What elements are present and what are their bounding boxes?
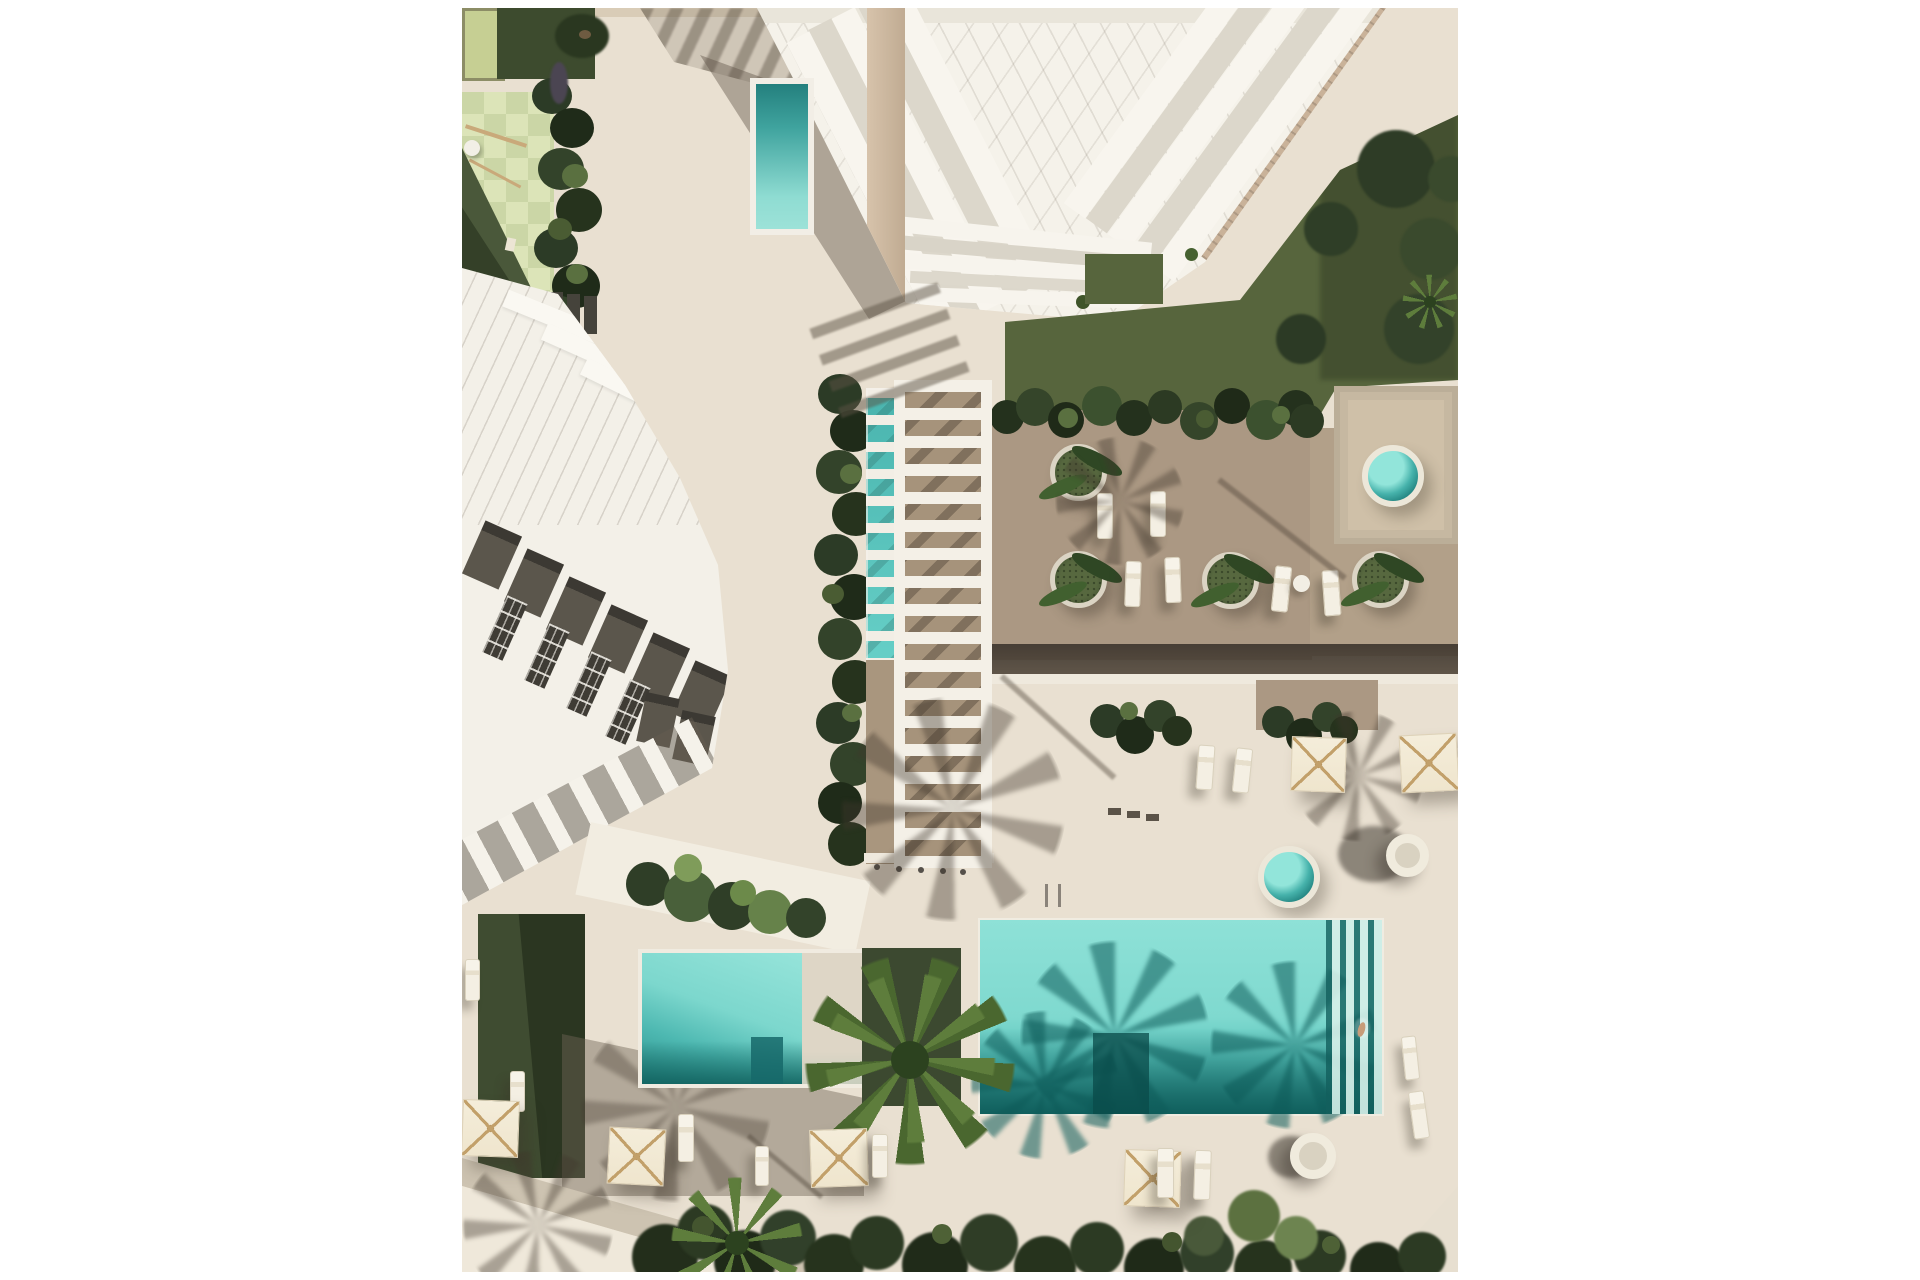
lawn-strip <box>1085 254 1163 304</box>
spa-pool <box>1258 846 1320 908</box>
sun-lounger <box>678 1114 694 1162</box>
step-marker <box>1127 811 1140 818</box>
shape <box>1045 884 1048 907</box>
hedge-south <box>1090 694 1188 760</box>
pool-steps-lines <box>1326 920 1382 1114</box>
shape <box>1120 702 1138 720</box>
shrub-accent <box>932 1224 952 1244</box>
round-planter <box>1352 551 1409 608</box>
tropical-plant <box>1274 1216 1318 1260</box>
parasol <box>1290 736 1347 793</box>
shrub <box>850 1216 904 1270</box>
sun-lounger <box>1157 1148 1174 1198</box>
parasol <box>809 1128 869 1188</box>
shape <box>1116 400 1152 436</box>
round-planter <box>1202 552 1259 609</box>
shape <box>548 218 572 240</box>
shape <box>822 584 844 604</box>
fan-palm <box>1402 274 1458 330</box>
bench <box>584 296 597 334</box>
pool-step <box>751 1037 783 1084</box>
pool-coping <box>750 78 814 235</box>
shape <box>1272 406 1290 424</box>
tree-canopy <box>1304 202 1358 256</box>
deck-edge-shadow <box>990 644 1458 678</box>
parasol <box>607 1127 667 1187</box>
tropical-plant <box>1184 1216 1224 1256</box>
shrub-accent <box>1162 1232 1182 1252</box>
shape <box>1058 408 1078 428</box>
plume-plant <box>550 62 568 104</box>
rooftop-lap-pool <box>756 84 808 229</box>
sun-lounger <box>1124 561 1142 608</box>
shape <box>1214 388 1250 424</box>
pool-step <box>1093 1033 1149 1114</box>
tropical-plant <box>1228 1190 1280 1242</box>
balcony-plant <box>1185 248 1198 261</box>
main-pool <box>980 920 1382 1114</box>
shape <box>562 164 588 188</box>
shrub <box>1070 1222 1124 1272</box>
tree-canopy <box>1357 130 1435 208</box>
round-daybed <box>1386 834 1429 877</box>
shape <box>1148 390 1182 424</box>
aerial-render <box>462 8 1458 1272</box>
shape <box>1290 404 1324 438</box>
parasol <box>462 1099 520 1158</box>
walkway-edge <box>990 674 1458 684</box>
shape <box>842 704 862 722</box>
pool-ladder <box>1045 884 1062 907</box>
hedge-north <box>990 378 1324 442</box>
shape <box>840 464 862 484</box>
shrub <box>960 1214 1018 1272</box>
palm-center <box>725 1231 749 1255</box>
tree-canopy <box>1276 314 1326 364</box>
shape <box>1162 716 1192 746</box>
round-chair <box>1290 1133 1336 1179</box>
sun-lounger <box>872 1134 888 1178</box>
step-marker <box>1146 814 1159 821</box>
palm-shadow <box>1055 436 1185 566</box>
shape <box>674 854 702 882</box>
sun-lounger <box>1164 557 1182 604</box>
shape <box>550 108 594 148</box>
shape <box>730 880 756 906</box>
shape <box>1058 884 1061 907</box>
sun-lounger <box>1193 1150 1212 1201</box>
sun-lounger <box>1195 744 1215 790</box>
parasol <box>1399 733 1458 794</box>
shape <box>1424 296 1436 308</box>
shape <box>814 534 858 576</box>
shrub-accent <box>1322 1236 1340 1254</box>
step-marker <box>1108 808 1121 815</box>
screenshot-root <box>0 0 1920 1280</box>
garden-bed <box>612 846 836 930</box>
pool-shadow-band <box>980 1028 1382 1114</box>
side-table <box>1293 575 1310 592</box>
shape <box>818 618 862 660</box>
shape <box>786 898 826 938</box>
shape <box>1196 410 1214 428</box>
spa-pool-upper <box>1362 445 1424 507</box>
hedge-row <box>532 68 606 324</box>
sun-lounger <box>465 959 480 1001</box>
palm-center <box>891 1041 929 1079</box>
shape <box>566 264 588 284</box>
tree-trunk <box>579 30 591 39</box>
parasol-top <box>464 140 480 156</box>
sun-lounger <box>755 1146 769 1186</box>
tree-canopy <box>1400 218 1458 280</box>
palm-shadow <box>840 696 1066 922</box>
shrub <box>1398 1232 1446 1272</box>
